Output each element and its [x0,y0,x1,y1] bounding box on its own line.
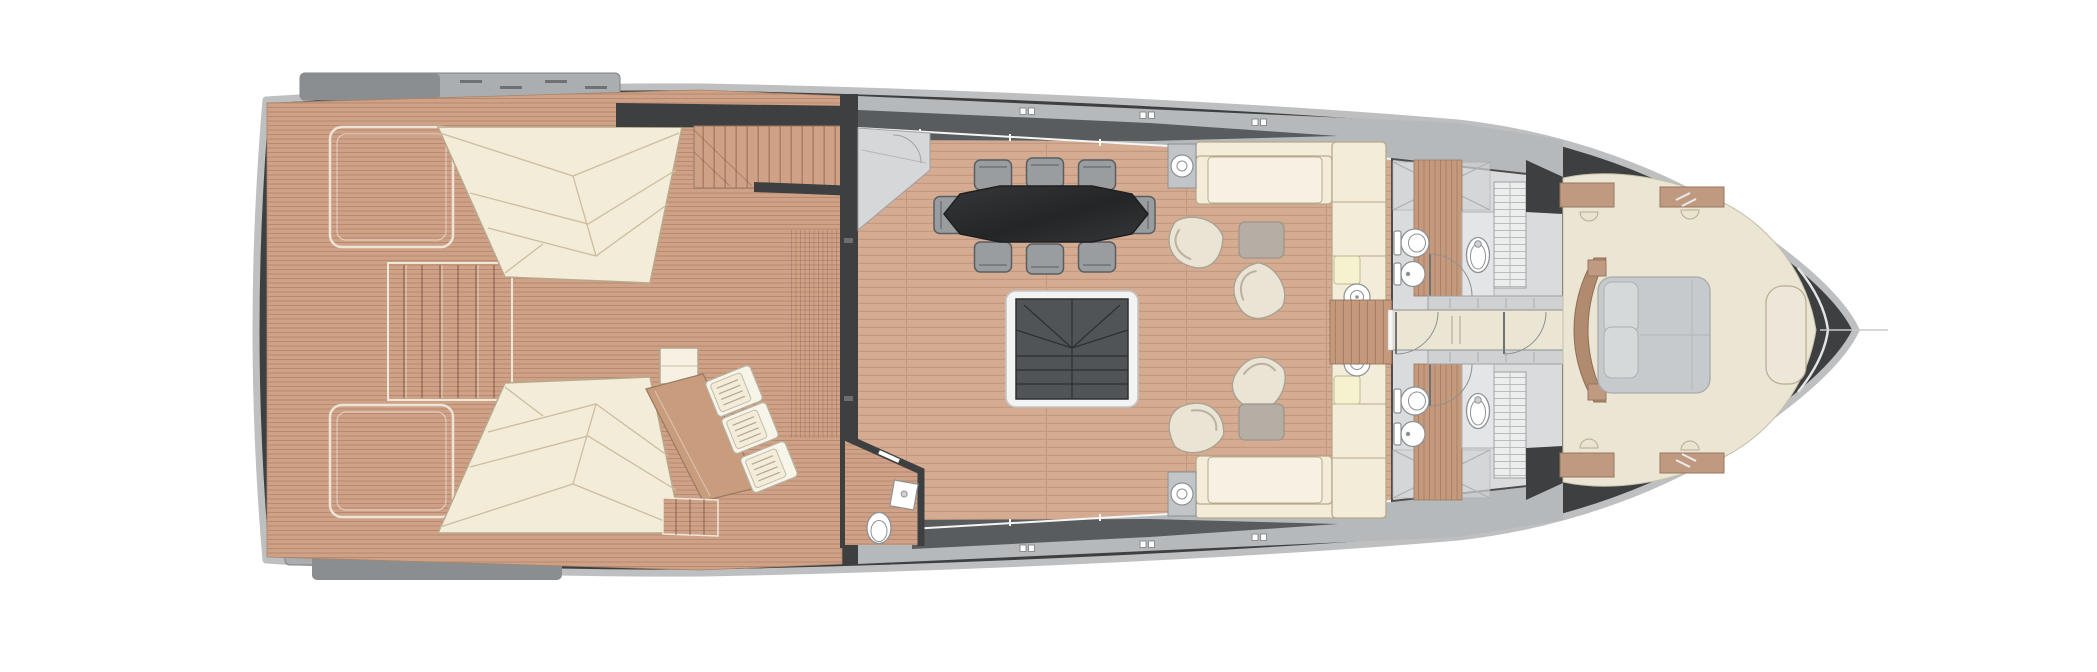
bulkhead-door-track-2 [844,396,853,401]
dining-table [944,186,1148,242]
stern-steps [388,263,512,400]
lamp-side-table-bottom [1168,472,1196,516]
yacht-floor-plan [0,0,2097,672]
flybridge-stairs-top-band [616,103,858,128]
pillow-1 [1604,282,1638,333]
ottoman-top [1239,222,1284,258]
stool-top [1334,256,1360,284]
dining-chair-6 [1079,242,1116,272]
lamp-side-table-top [1168,144,1196,188]
dining-chair-5 [1027,244,1064,274]
salon-stairwell [1006,291,1138,407]
corridor-wood-patch [1330,300,1392,364]
aft-deck-lower-steps [663,498,718,536]
toilet-starboard [1394,387,1429,415]
teak-lounge-platform-top [330,127,453,247]
wardrobe-starboard [1494,372,1526,478]
pillow-2 [1604,327,1638,378]
yacht-floor-plan-page [0,0,2097,672]
bedside-cabinet-2 [1660,187,1724,207]
wardrobe-port [1494,182,1526,288]
stool-bottom [1334,376,1360,404]
bedside-cabinet-4 [1660,453,1724,473]
bedside-cabinet-3 [1560,453,1614,477]
sink-starboard [1467,394,1490,429]
dining-chair-4 [975,242,1012,272]
flybridge-stairs [694,126,846,188]
bow-bench [1766,286,1806,384]
dining-chair-2 [1027,158,1064,188]
counter-port [1428,296,1563,310]
bedside-cabinet-1 [1560,183,1614,207]
sink-port [1467,238,1490,273]
corridor-threshold [1388,310,1393,350]
aft-deck-grid-mat [788,230,842,438]
day-head-sink [890,480,918,510]
counter-starboard [1428,350,1563,364]
stern-platform-top-inner [300,73,440,100]
day-head-toilet [867,513,891,544]
headboard-post-top [1588,260,1606,276]
bidet-starboard [1394,422,1425,447]
ottoman-bottom [1239,404,1284,440]
toilet-port [1394,229,1429,257]
bulkhead-door-track-1 [844,238,853,243]
bidet-port [1394,262,1425,287]
teak-lounge-platform-bottom [330,405,453,517]
